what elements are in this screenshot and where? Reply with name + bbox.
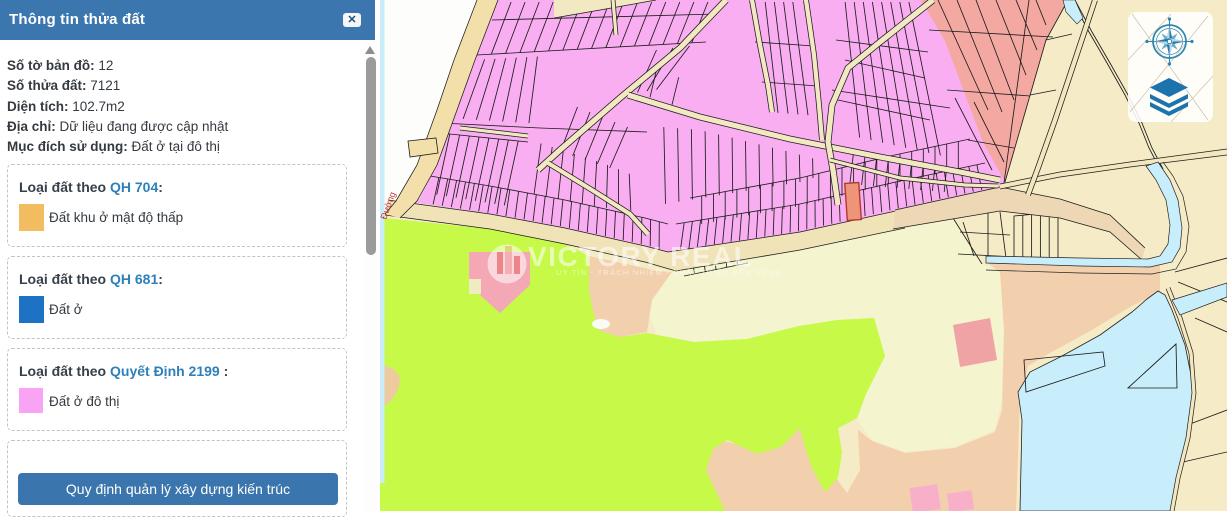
svg-text:UY TÍN - TRÁCH NHIỆM - PHÁT TR: UY TÍN - TRÁCH NHIỆM - PHÁT TRIỂN BỀN VỮ… [556,267,783,277]
